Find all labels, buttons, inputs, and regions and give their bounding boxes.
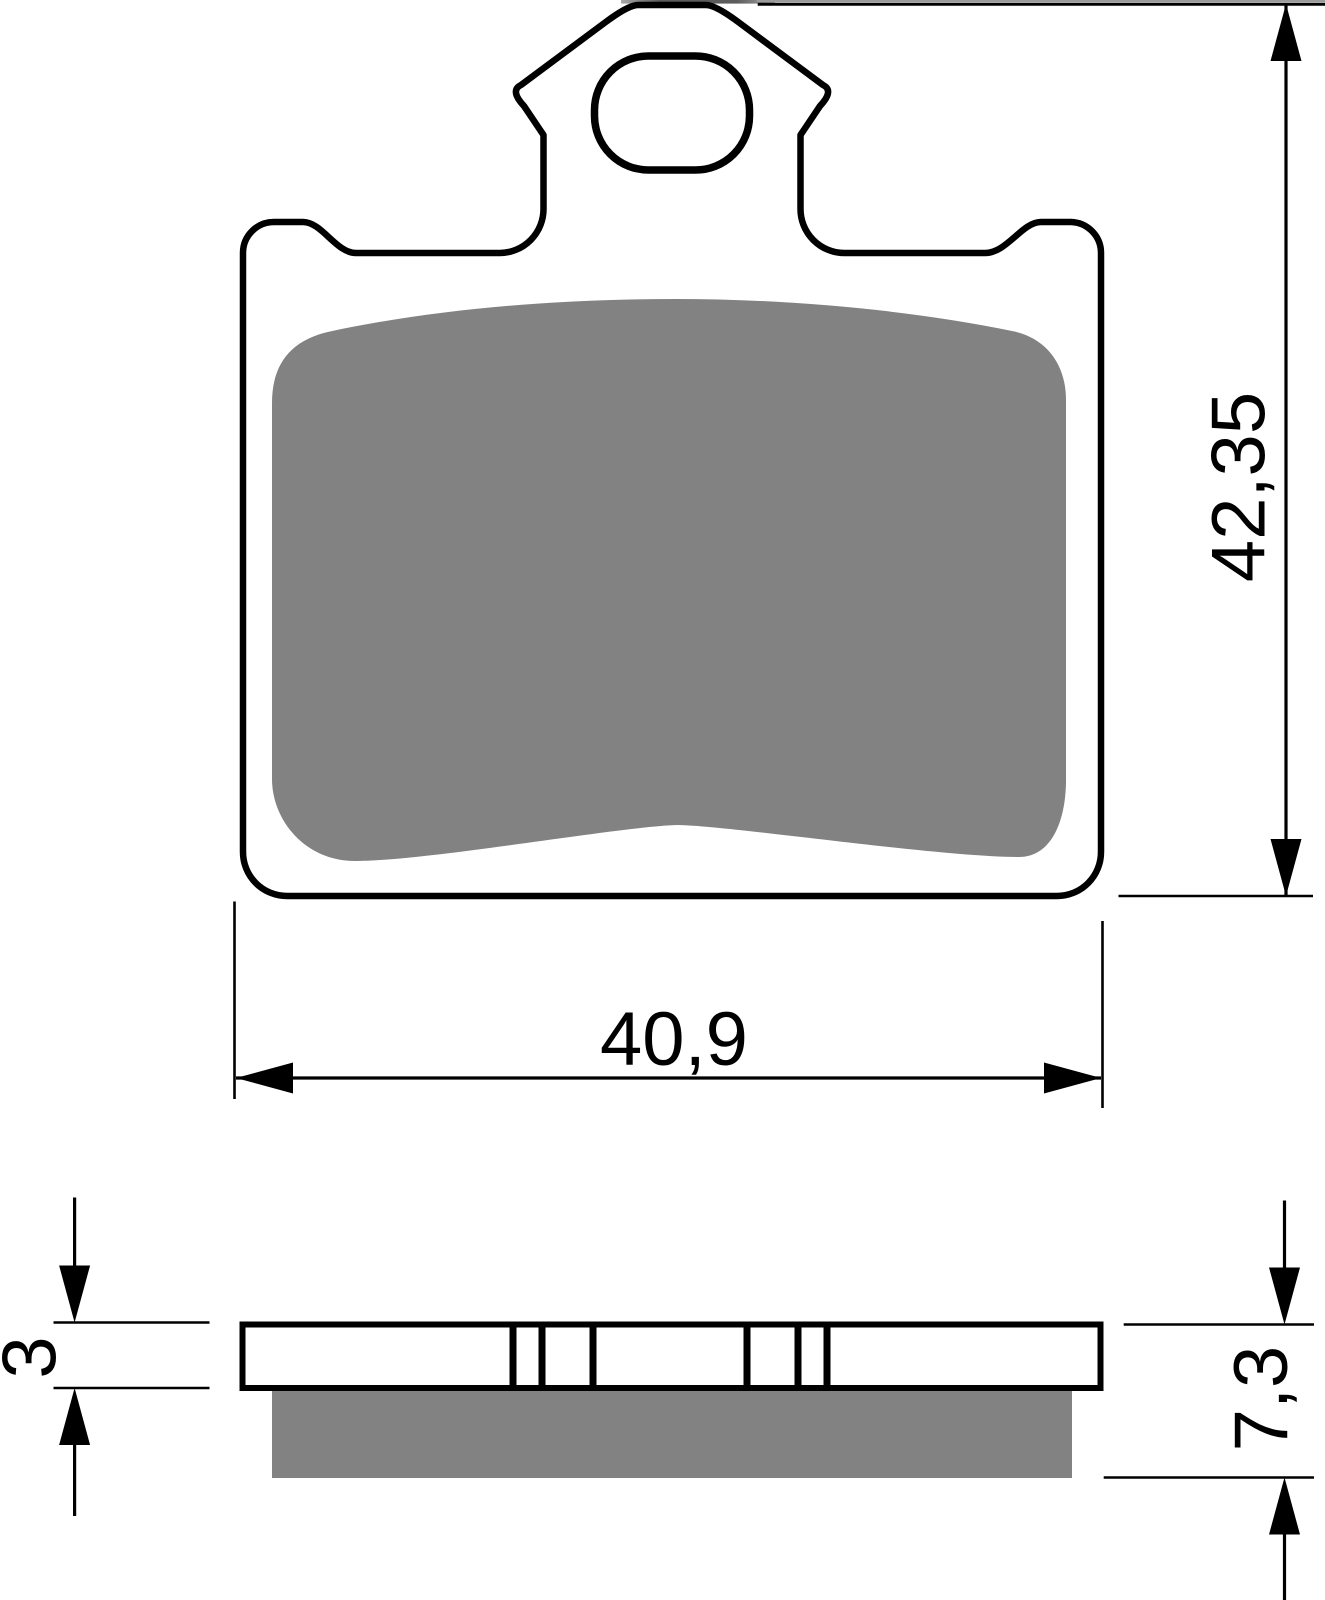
svg-text:7,3: 7,3 (1219, 1346, 1304, 1452)
svg-text:3: 3 (0, 1336, 73, 1378)
svg-text:42,35: 42,35 (1197, 392, 1282, 582)
svg-text:40,9: 40,9 (600, 997, 748, 1082)
